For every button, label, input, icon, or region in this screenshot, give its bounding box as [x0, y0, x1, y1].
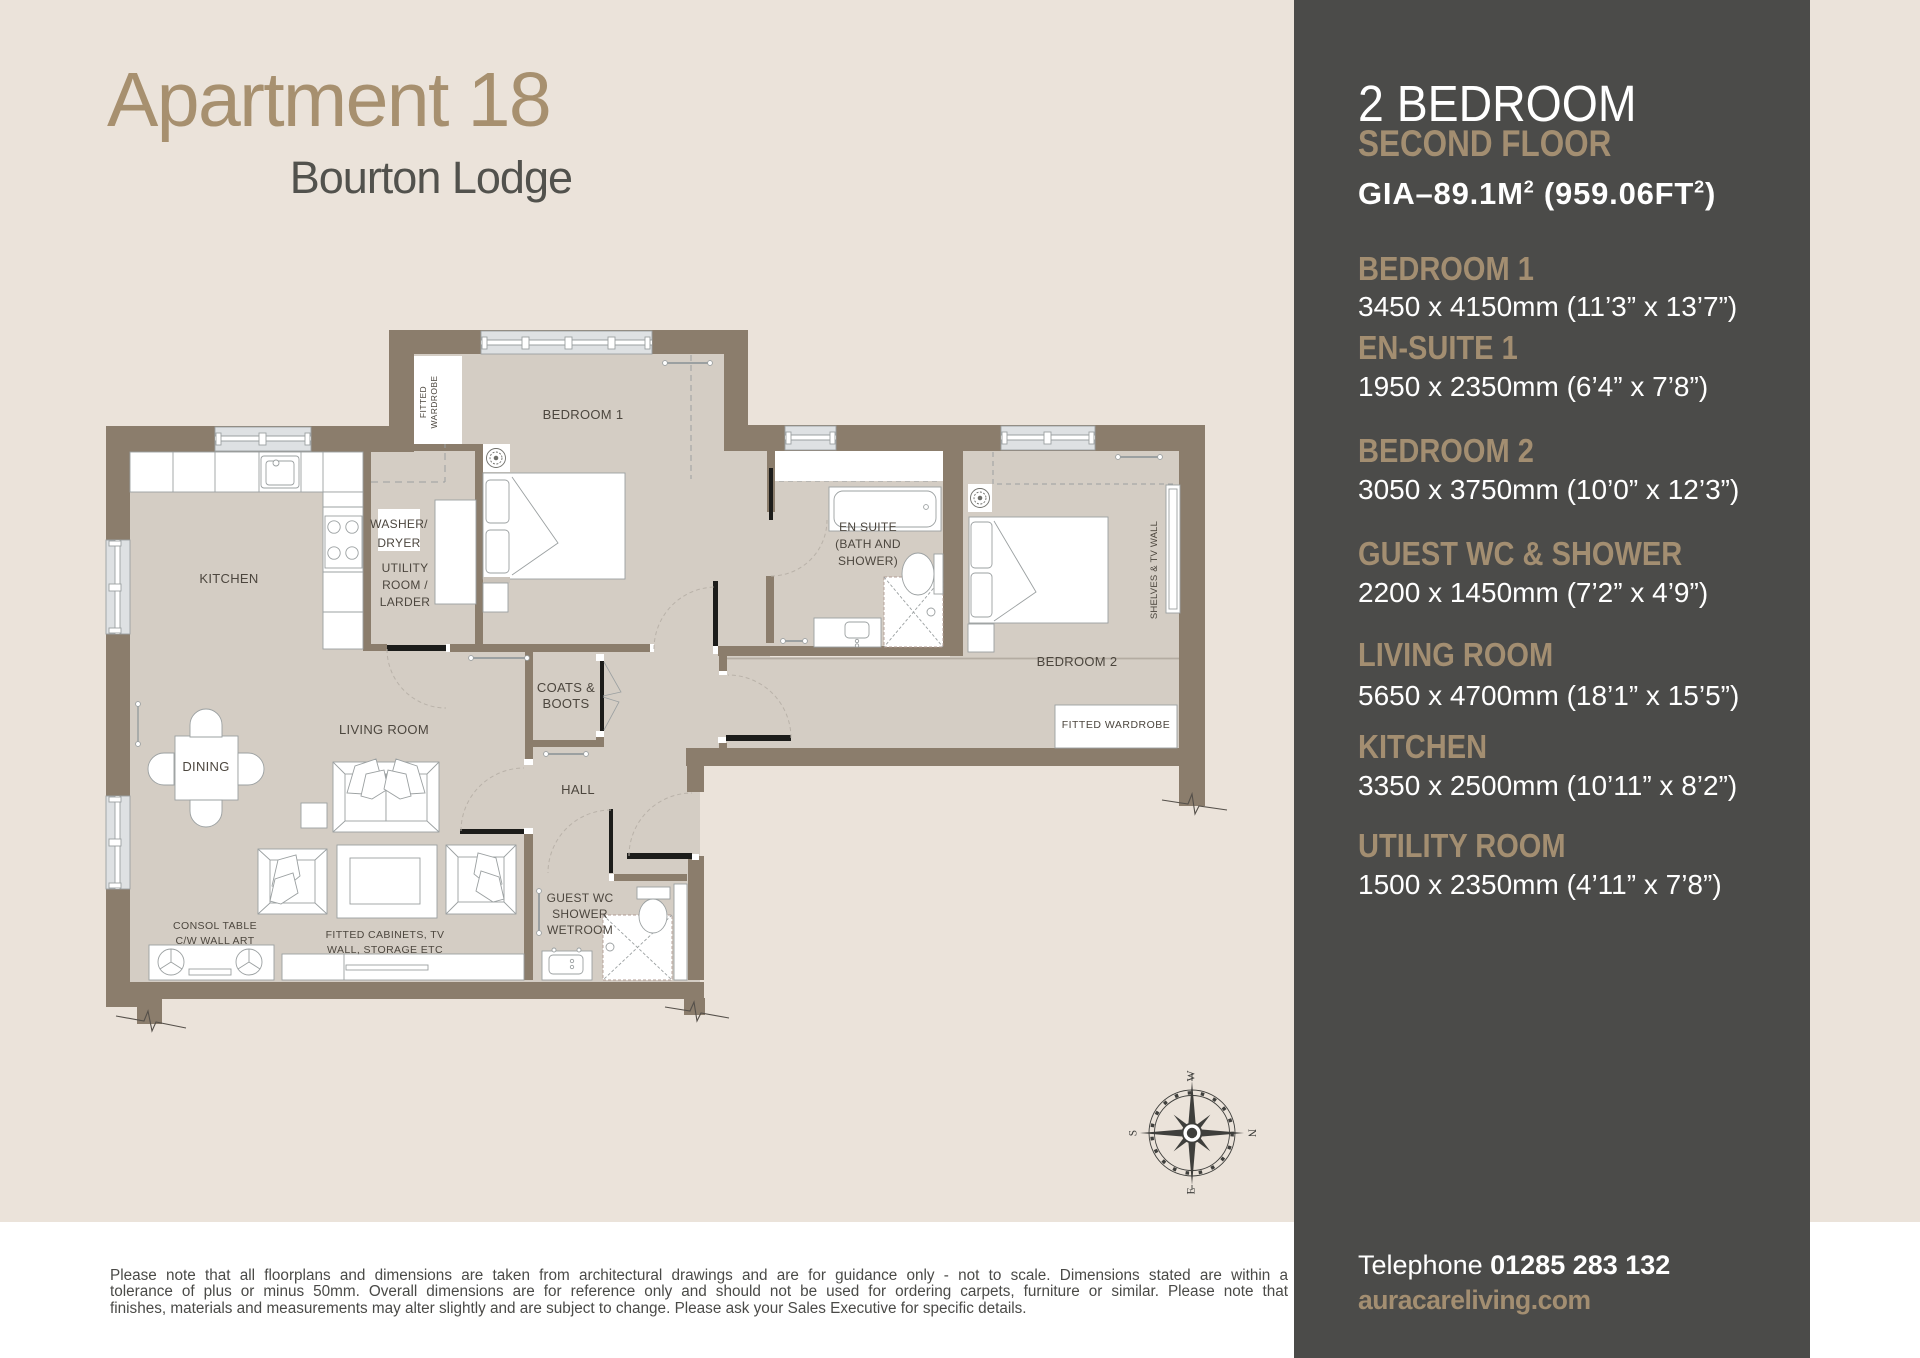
svg-text:S: S	[1128, 1130, 1140, 1136]
svg-text:GUEST WC: GUEST WC	[547, 891, 614, 905]
svg-text:SHELVES & TV WALL: SHELVES & TV WALL	[1149, 521, 1160, 619]
svg-text:WALL, STORAGE ETC: WALL, STORAGE ETC	[327, 944, 443, 956]
svg-text:COATS &: COATS &	[537, 680, 595, 695]
svg-text:E: E	[1186, 1187, 1198, 1194]
svg-text:BOOTS: BOOTS	[542, 696, 589, 711]
svg-text:CONSOL TABLE: CONSOL TABLE	[173, 920, 257, 932]
svg-text:LIVING ROOM: LIVING ROOM	[339, 722, 429, 737]
svg-text:FITTED WARDROBE: FITTED WARDROBE	[1062, 719, 1171, 731]
svg-text:LARDER: LARDER	[380, 595, 431, 609]
svg-text:BEDROOM 1: BEDROOM 1	[543, 407, 624, 422]
svg-text:UTILITY: UTILITY	[382, 561, 429, 575]
svg-text:EN SUITE: EN SUITE	[839, 520, 897, 534]
svg-text:DINING: DINING	[182, 759, 229, 774]
svg-text:SHOWER): SHOWER)	[838, 554, 898, 568]
svg-text:WETROOM: WETROOM	[547, 923, 613, 937]
svg-text:HALL: HALL	[561, 782, 595, 797]
svg-text:FITTED CABINETS, TV: FITTED CABINETS, TV	[326, 929, 445, 941]
svg-text:WASHER/: WASHER/	[370, 517, 428, 531]
svg-text:W: W	[1186, 1070, 1198, 1081]
svg-text:BEDROOM 2: BEDROOM 2	[1037, 654, 1118, 669]
svg-text:SHOWER: SHOWER	[552, 907, 608, 921]
svg-text:C/W WALL ART: C/W WALL ART	[175, 935, 254, 947]
svg-text:KITCHEN: KITCHEN	[199, 571, 258, 586]
svg-text:N: N	[1245, 1129, 1257, 1138]
svg-text:ROOM /: ROOM /	[382, 578, 428, 592]
svg-text:DRYER: DRYER	[377, 536, 420, 550]
svg-text:(BATH AND: (BATH AND	[835, 537, 901, 551]
